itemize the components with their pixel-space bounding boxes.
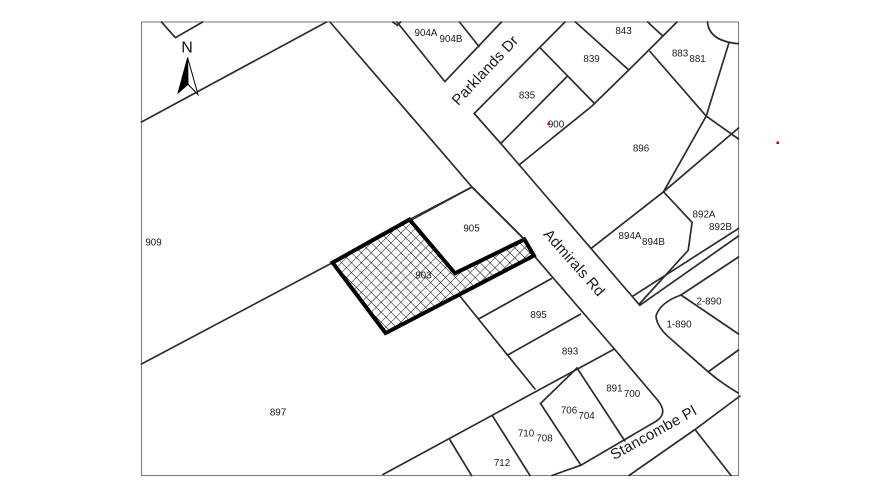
- svg-text:712: 712: [494, 458, 510, 469]
- svg-text:835: 835: [519, 91, 536, 102]
- svg-text:N: N: [181, 40, 193, 57]
- svg-text:881: 881: [689, 54, 705, 65]
- svg-text:900: 900: [548, 120, 565, 131]
- svg-text:706: 706: [561, 406, 578, 417]
- svg-text:897: 897: [270, 408, 286, 419]
- svg-text:905: 905: [463, 224, 480, 235]
- svg-text:894B: 894B: [642, 237, 665, 248]
- svg-text:700: 700: [624, 389, 641, 400]
- svg-text:710: 710: [518, 429, 535, 440]
- svg-text:2-890: 2-890: [696, 296, 722, 307]
- svg-text:909: 909: [145, 238, 161, 249]
- svg-text:904A: 904A: [415, 28, 438, 39]
- svg-text:904B: 904B: [440, 34, 463, 45]
- svg-text:893: 893: [562, 347, 579, 358]
- svg-text:883: 883: [672, 49, 689, 60]
- svg-text:891: 891: [606, 383, 622, 394]
- svg-text:843: 843: [615, 26, 632, 37]
- svg-text:708: 708: [536, 434, 553, 445]
- svg-text:903: 903: [415, 271, 432, 282]
- svg-text:895: 895: [530, 310, 547, 321]
- svg-text:839: 839: [583, 54, 599, 65]
- svg-text:892B: 892B: [709, 222, 732, 233]
- svg-text:894A: 894A: [619, 231, 642, 242]
- svg-text:704: 704: [578, 411, 595, 422]
- svg-text:1-890: 1-890: [666, 320, 692, 331]
- svg-text:892A: 892A: [693, 210, 716, 221]
- svg-text:896: 896: [633, 144, 650, 155]
